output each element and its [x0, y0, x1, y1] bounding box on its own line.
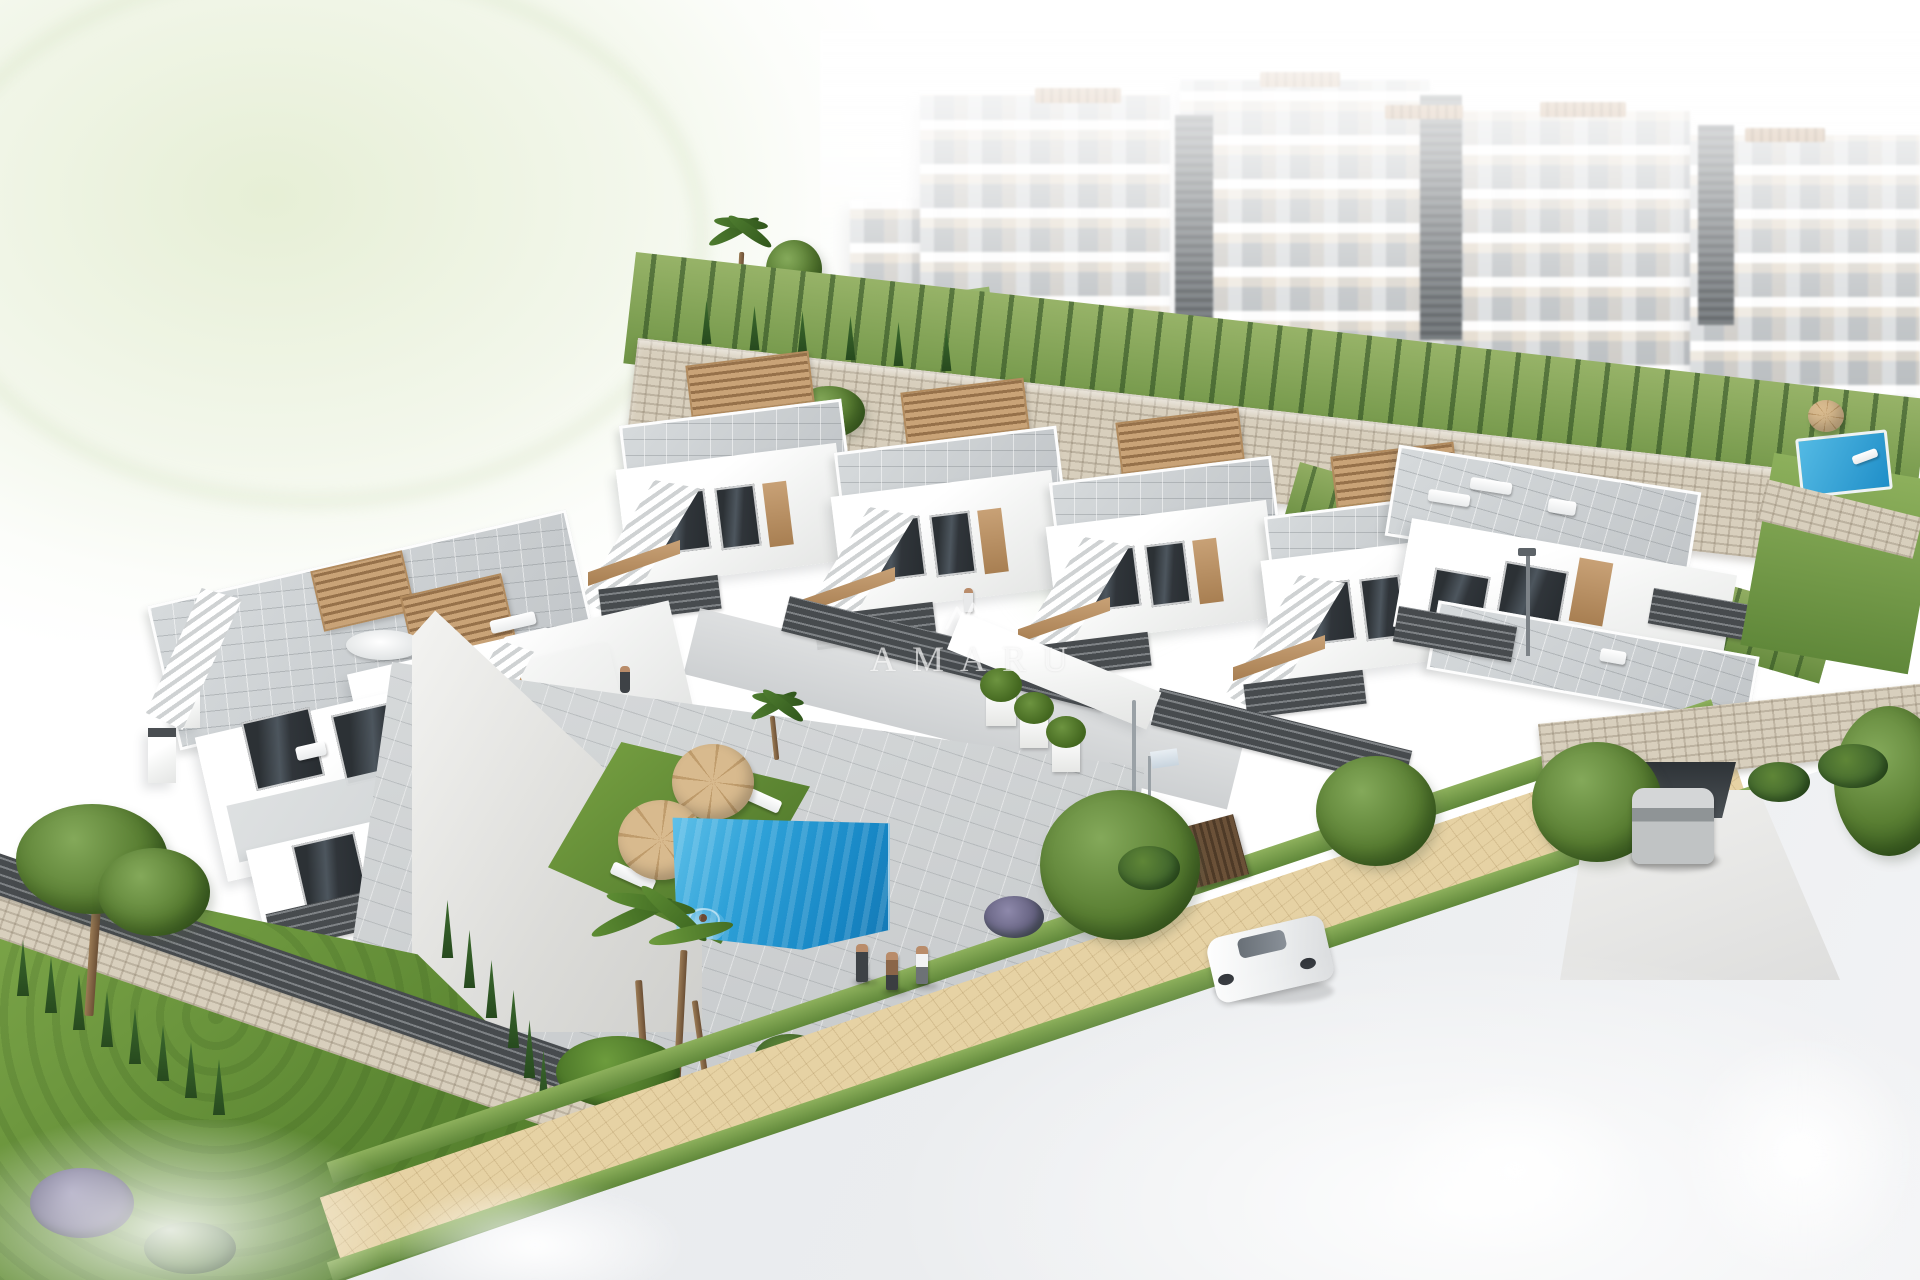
wall-bush — [1818, 744, 1888, 788]
street-lamp-head — [1518, 548, 1536, 556]
road-haze — [900, 950, 1920, 1280]
grey-car — [1632, 788, 1714, 864]
balcony-person — [620, 666, 630, 693]
upper-right-pool — [1795, 429, 1893, 498]
street-tree — [1316, 756, 1436, 866]
wall-bush — [1118, 846, 1180, 890]
wall-bush — [1748, 762, 1810, 802]
roof-parasol-white — [346, 630, 422, 660]
amaru-logo-icon — [944, 602, 990, 632]
planter-plant — [1046, 716, 1086, 748]
townhouse-window — [714, 484, 761, 550]
ghost-car — [380, 1180, 690, 1280]
street-lamp-pole — [1526, 556, 1530, 656]
pine-tree-canopy — [98, 848, 210, 936]
watermark-text: AMARU — [870, 638, 1084, 680]
pool-shower-pole — [1132, 700, 1136, 792]
grey-car-windshield — [1642, 806, 1704, 822]
render-stage: AMARU — [0, 0, 1920, 1280]
townhouse-window — [1144, 541, 1191, 607]
pedestrian — [886, 952, 898, 990]
watermark: AMARU — [860, 600, 1120, 700]
pedestrian — [856, 944, 868, 982]
flowering-bush — [984, 896, 1044, 938]
parasol — [1808, 400, 1844, 432]
left-chimney — [148, 728, 176, 783]
townhouse-window — [929, 511, 976, 577]
bottom-left-haze — [0, 1120, 400, 1280]
